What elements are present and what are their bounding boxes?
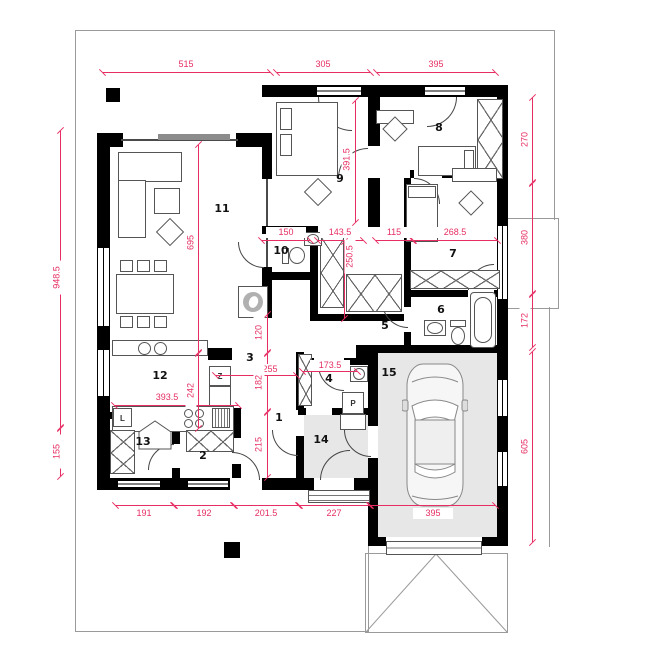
pillow <box>280 108 292 130</box>
wall <box>404 290 468 297</box>
dim-label: 380 <box>520 221 531 255</box>
wall <box>310 280 318 321</box>
room-number-8: 8 <box>428 121 450 134</box>
room-number-5: 5 <box>374 319 396 332</box>
dim-label: 250.5 <box>345 240 356 274</box>
wall <box>410 170 414 178</box>
coffee-table <box>156 218 184 246</box>
room-number-11: 11 <box>211 202 233 215</box>
burner <box>195 409 204 418</box>
dim-line <box>377 72 495 73</box>
chair <box>304 178 332 206</box>
dining-table <box>116 274 174 314</box>
dim-label: 215 <box>254 428 265 462</box>
dim-label: 242 <box>186 374 197 408</box>
dim-line <box>414 240 497 241</box>
dishwasher: Z <box>209 366 231 386</box>
dim-line <box>532 98 533 182</box>
room-number-6: 6 <box>430 303 452 316</box>
dim-line <box>318 240 363 241</box>
dim-label: 695 <box>186 226 197 260</box>
window <box>317 86 361 96</box>
window <box>497 380 508 416</box>
fridge: L <box>113 408 132 427</box>
room-number-10: 10 <box>270 244 292 257</box>
dim-label: 515 <box>166 59 206 70</box>
dim-line <box>532 184 533 293</box>
dim-line <box>267 315 268 352</box>
sofa <box>118 152 182 182</box>
window <box>97 248 110 326</box>
dim-line <box>267 354 268 411</box>
chair <box>120 316 133 328</box>
shoe-cabinet <box>340 414 366 430</box>
window <box>118 480 160 488</box>
dim-label: 948.5 <box>52 261 63 295</box>
dim-label: 395 <box>413 508 453 519</box>
dim-label: 192 <box>184 508 224 519</box>
pillow <box>280 134 292 156</box>
dim-label: 305 <box>303 59 343 70</box>
terrace-column <box>106 88 120 102</box>
dim-line <box>235 505 298 506</box>
dim-line <box>198 354 199 428</box>
dim-label: 268.5 <box>435 227 475 238</box>
pillow <box>408 186 436 198</box>
sink-bowl <box>427 322 443 334</box>
dim-line <box>116 505 173 506</box>
room-number-7: 7 <box>442 247 464 260</box>
dim-label: 115 <box>374 227 414 238</box>
wall <box>368 178 380 227</box>
dim-line <box>198 145 199 352</box>
room-number-2: 2 <box>192 449 214 462</box>
eave-line-bottom <box>75 631 369 632</box>
room-number-15: 15 <box>378 366 400 379</box>
dim-line <box>262 240 310 241</box>
dim-label: 605 <box>520 430 531 464</box>
burner <box>184 419 193 428</box>
room-number-14: 14 <box>310 433 332 446</box>
window <box>188 480 228 488</box>
cabinet <box>320 236 344 308</box>
eave-line-right-lower <box>549 307 550 547</box>
chair <box>458 190 483 215</box>
dish-rack <box>212 408 230 428</box>
dim-line <box>355 101 356 222</box>
wall <box>497 218 508 226</box>
dim-label: 395 <box>416 59 456 70</box>
room-number-13: 13 <box>132 435 154 448</box>
garage-door <box>386 541 482 555</box>
eave-line-top <box>75 30 555 31</box>
dim-label: 191 <box>124 508 164 519</box>
washer: P <box>342 392 364 414</box>
cabinet <box>346 274 402 312</box>
chair <box>137 316 150 328</box>
sink-bowl <box>154 342 167 355</box>
wall <box>482 537 508 546</box>
dim-line <box>277 72 370 73</box>
dim-label: 155 <box>52 435 63 469</box>
dim-line <box>300 505 369 506</box>
door-arc <box>238 242 264 268</box>
car-icon <box>402 360 468 510</box>
chair <box>120 260 133 272</box>
dim-label: 143.5 <box>320 227 360 238</box>
chair <box>154 260 167 272</box>
door-arc <box>272 430 298 456</box>
dim-label: 150 <box>266 227 306 238</box>
chair <box>154 316 167 328</box>
tv-cabinet <box>158 134 230 140</box>
room-number-4: 4 <box>318 372 340 385</box>
sink-bowl <box>138 342 151 355</box>
window <box>497 452 508 486</box>
dim-label: 173.5 <box>310 360 350 371</box>
bathtub-inner <box>474 297 492 343</box>
tall-cabinet <box>209 386 231 406</box>
dim-line <box>103 72 270 73</box>
dim-label: 182 <box>254 366 265 400</box>
floor-plan: P L Z <box>0 0 660 660</box>
interior-glass <box>266 179 268 267</box>
dim-line <box>175 505 233 506</box>
wall <box>368 537 386 546</box>
toilet <box>451 327 465 345</box>
dim-label: 227 <box>314 508 354 519</box>
room-number-9: 9 <box>329 172 351 185</box>
window <box>425 86 465 96</box>
dim-label: 393.5 <box>147 392 187 403</box>
eave-line-left <box>75 30 76 632</box>
room-number-1: 1 <box>268 411 290 424</box>
wall <box>298 408 306 415</box>
dim-line <box>532 295 533 347</box>
wardrobe <box>410 270 500 289</box>
wall <box>404 332 411 345</box>
driveway <box>365 553 508 633</box>
entrance-steps <box>308 490 370 503</box>
burner <box>184 409 193 418</box>
chair <box>137 260 150 272</box>
wall <box>262 133 272 179</box>
room-number-3: 3 <box>239 351 261 364</box>
toilet-tank <box>450 320 466 327</box>
dim-line <box>532 352 533 542</box>
dim-line <box>371 505 495 506</box>
dim-label: 270 <box>520 123 531 157</box>
dim-line <box>115 405 238 406</box>
eave-line-right-upper <box>554 30 555 220</box>
desk <box>452 168 497 182</box>
wardrobe <box>477 99 503 179</box>
wall <box>262 85 508 97</box>
sofa <box>118 180 146 238</box>
dim-label: 120 <box>254 316 265 350</box>
dim-line <box>376 240 412 241</box>
window <box>97 350 110 396</box>
wall <box>208 348 232 360</box>
armchair <box>154 188 180 214</box>
dim-label: 172 <box>520 304 531 338</box>
room-number-12: 12 <box>149 369 171 382</box>
terrace-column <box>224 542 240 558</box>
dim-label: 201.5 <box>246 508 286 519</box>
